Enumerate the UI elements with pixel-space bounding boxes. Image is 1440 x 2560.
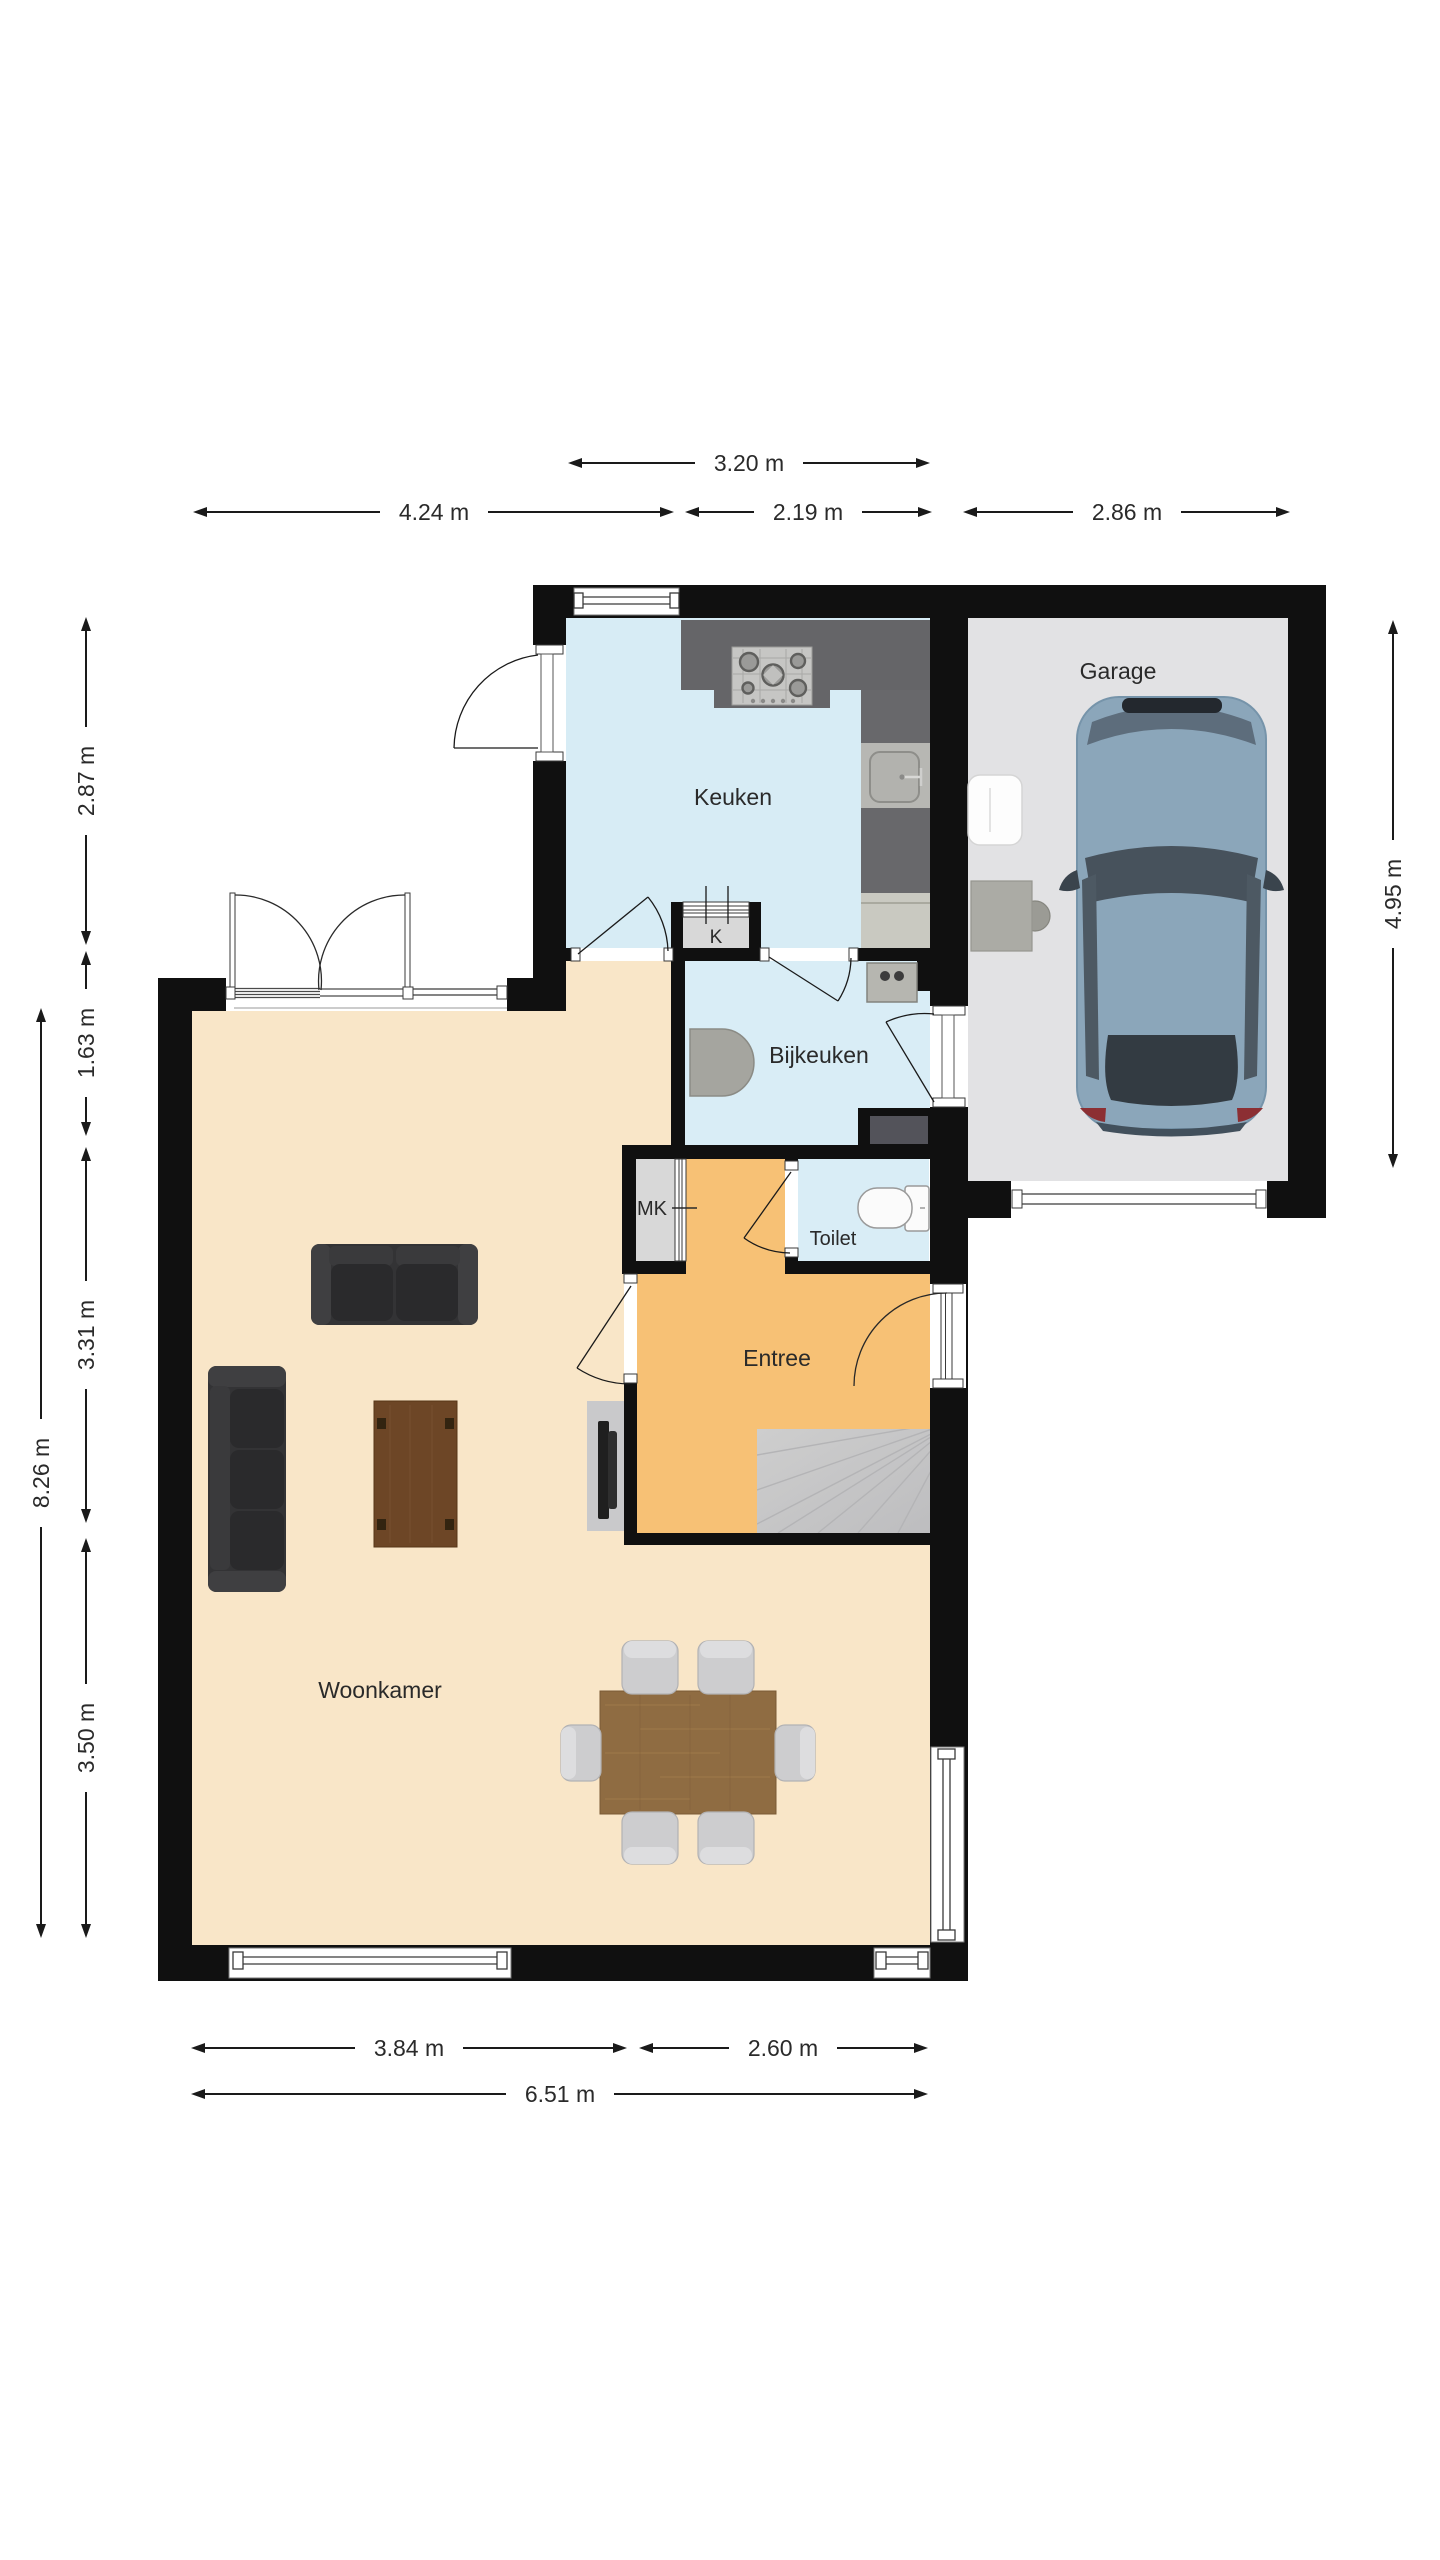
svg-text:Keuken: Keuken: [694, 784, 772, 810]
svg-text:2.19 m: 2.19 m: [773, 499, 843, 525]
svg-text:3.31 m: 3.31 m: [73, 1300, 99, 1370]
svg-text:Woonkamer: Woonkamer: [318, 1677, 442, 1703]
svg-text:Garage: Garage: [1080, 658, 1157, 684]
svg-text:Toilet: Toilet: [810, 1228, 857, 1250]
svg-text:K: K: [710, 927, 723, 948]
svg-text:3.84 m: 3.84 m: [374, 2035, 444, 2061]
svg-text:3.50 m: 3.50 m: [73, 1703, 99, 1773]
svg-text:6.51 m: 6.51 m: [525, 2081, 595, 2107]
svg-text:3.20 m: 3.20 m: [714, 450, 784, 476]
svg-text:8.26 m: 8.26 m: [28, 1438, 54, 1508]
svg-text:MK: MK: [637, 1198, 668, 1220]
svg-text:2.86 m: 2.86 m: [1092, 499, 1162, 525]
svg-text:1.63 m: 1.63 m: [73, 1008, 99, 1078]
svg-text:Bijkeuken: Bijkeuken: [769, 1042, 869, 1068]
svg-text:2.87 m: 2.87 m: [73, 746, 99, 816]
svg-text:Entree: Entree: [743, 1345, 811, 1371]
svg-text:2.60 m: 2.60 m: [748, 2035, 818, 2061]
svg-text:4.24 m: 4.24 m: [399, 499, 469, 525]
svg-text:4.95 m: 4.95 m: [1380, 859, 1406, 929]
